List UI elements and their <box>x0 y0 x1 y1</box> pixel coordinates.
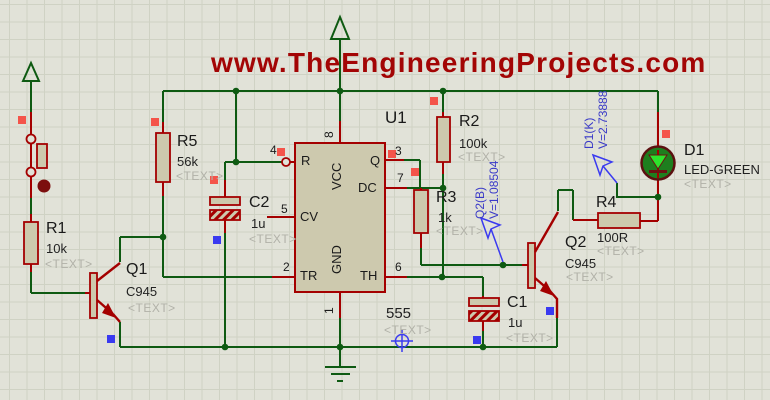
wire-out-to-q2base[interactable] <box>421 248 522 265</box>
pin-number-2: 2 <box>283 261 290 273</box>
r5-ref: R5 <box>177 134 197 150</box>
d1-text: <TEXT> <box>684 178 732 190</box>
pin-label-vcc: VCC <box>330 163 343 190</box>
wire-q1-collector[interactable] <box>120 237 163 262</box>
pin-number-8: 8 <box>323 131 335 138</box>
capacitor-c1[interactable] <box>469 298 499 321</box>
q2-value: C945 <box>565 257 596 270</box>
pin-number-1: 1 <box>323 307 335 314</box>
reset-inversion-bubble <box>282 158 290 166</box>
pin-label-r: R <box>301 154 310 167</box>
r4-ref: R4 <box>596 195 616 211</box>
r1-value: 10k <box>46 242 67 255</box>
r3-text: <TEXT> <box>436 225 484 237</box>
u1-text: <TEXT> <box>384 324 432 336</box>
button-terminal <box>27 168 36 177</box>
pin-number-4: 4 <box>270 144 277 156</box>
r4-text: <TEXT> <box>597 245 645 257</box>
c1-ref: C1 <box>507 295 527 311</box>
led-d1[interactable] <box>642 147 675 180</box>
pin-label-q: Q <box>370 154 380 167</box>
transistor-q1[interactable] <box>90 263 120 322</box>
button-actuator[interactable] <box>38 180 51 193</box>
c2-ref: C2 <box>249 195 269 211</box>
voltage-probe-q2b[interactable] <box>481 218 503 262</box>
d1-ref: D1 <box>684 143 704 159</box>
pin-label-tr: TR <box>300 269 317 282</box>
pin-number-7: 7 <box>397 172 404 184</box>
q2-ref: Q2 <box>565 235 586 251</box>
r5-value: 56k <box>177 155 198 168</box>
resistor-r1-body[interactable] <box>24 222 38 264</box>
r5-text: <TEXT> <box>176 170 224 182</box>
power-arrow-icon[interactable] <box>23 63 39 81</box>
capacitor-c2[interactable] <box>210 197 240 220</box>
pin-label-dc: DC <box>358 181 377 194</box>
q1-value: C945 <box>126 285 157 298</box>
q1-text: <TEXT> <box>128 302 176 314</box>
r2-ref: R2 <box>459 114 479 130</box>
u1-value: 555 <box>386 306 411 321</box>
q1-ref: Q1 <box>126 262 147 278</box>
resistor-r5-body[interactable] <box>156 133 170 182</box>
led-cathode-bar <box>649 170 667 173</box>
pin-label-cv: CV <box>300 210 318 223</box>
schematic-canvas: www.TheEngineeringProjects.com R1 10k <T… <box>0 0 770 400</box>
transistor-q2[interactable] <box>528 212 558 318</box>
wire-th-row[interactable] <box>407 277 483 296</box>
pin-label-gnd: GND <box>330 245 343 274</box>
c2-value: 1u <box>251 217 265 230</box>
c1-value: 1u <box>508 316 522 329</box>
pin-number-3: 3 <box>395 145 402 157</box>
q2-text: <TEXT> <box>566 271 614 283</box>
probe-q2b-reading: V=1.08504 <box>488 161 500 219</box>
r4-value: 100R <box>597 231 628 244</box>
wire-probe-d1k[interactable] <box>617 183 656 197</box>
resistor-r2-body[interactable] <box>437 117 450 162</box>
u1-ref: U1 <box>385 109 407 126</box>
pin-number-5: 5 <box>281 203 288 215</box>
resistor-r4-body[interactable] <box>598 213 640 228</box>
d1-value: LED-GREEN <box>684 163 760 176</box>
probe-q2b-name: Q2(B) <box>474 187 486 219</box>
wire-r1-to-q1base[interactable] <box>31 272 85 293</box>
r2-value: 100k <box>459 137 487 150</box>
button-terminal <box>27 135 36 144</box>
resistor-r3-body[interactable] <box>414 190 428 233</box>
r3-value: 1k <box>438 211 452 224</box>
c1-text: <TEXT> <box>506 332 554 344</box>
pin-label-th: TH <box>360 269 377 282</box>
wire-q2-collector[interactable] <box>558 190 573 220</box>
pin-number-6: 6 <box>395 261 402 273</box>
r1-ref: R1 <box>46 221 66 237</box>
voltage-probe-d1k[interactable] <box>593 155 617 183</box>
power-arrow-icon[interactable] <box>331 17 349 39</box>
c2-text: <TEXT> <box>249 233 297 245</box>
probe-d1k-name: D1(K) <box>583 118 595 149</box>
watermark-title: www.TheEngineeringProjects.com <box>211 49 707 77</box>
ground-symbol <box>325 367 356 381</box>
r3-ref: R3 <box>436 190 456 206</box>
r1-text: <TEXT> <box>45 258 93 270</box>
probe-d1k-reading: V=2.73888 <box>597 91 609 149</box>
